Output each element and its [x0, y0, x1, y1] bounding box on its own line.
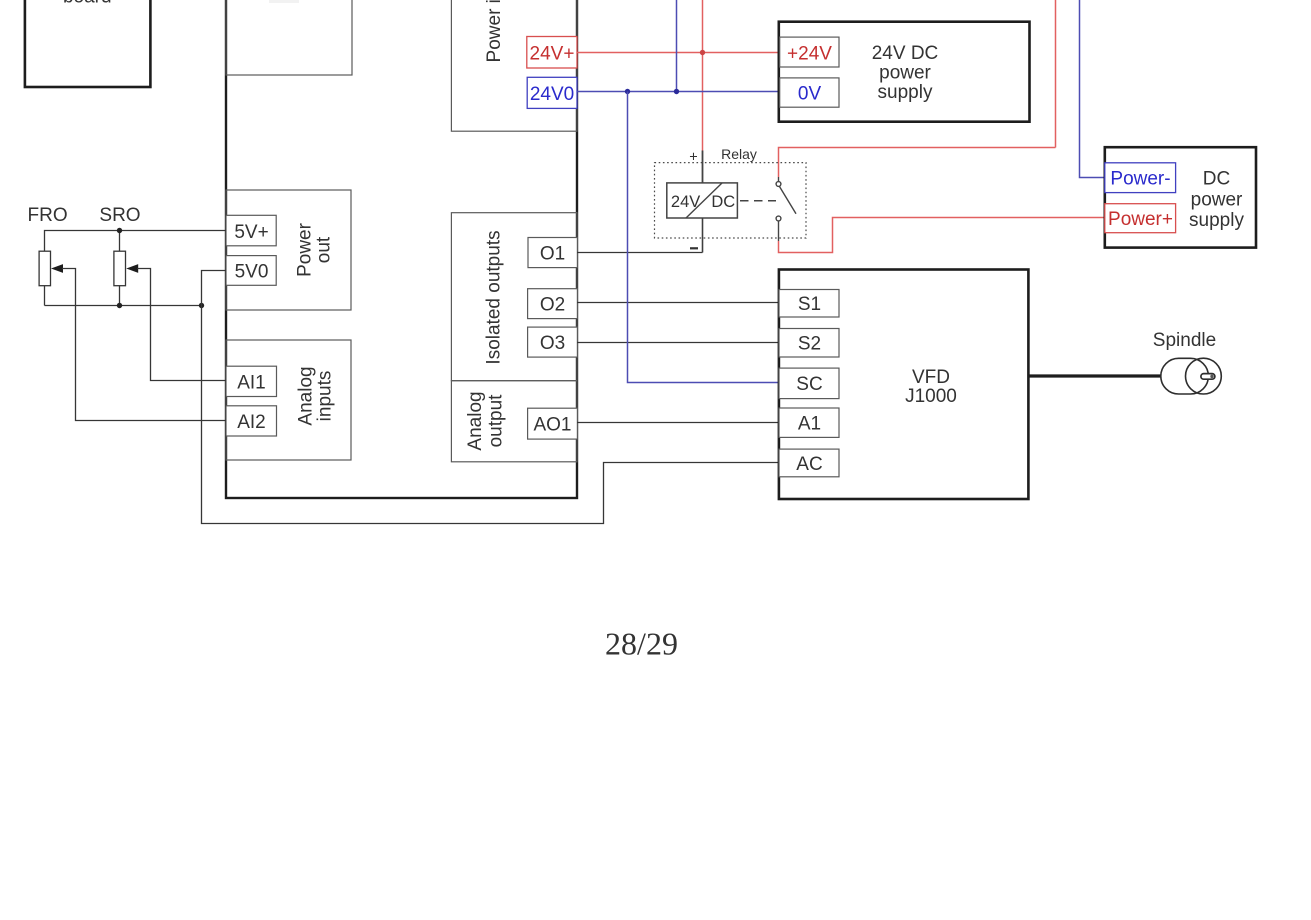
svg-text:Spindle: Spindle: [1153, 330, 1216, 351]
svg-text:J1000: J1000: [905, 386, 957, 407]
svg-text:SC: SC: [796, 374, 822, 395]
svg-text:Power+: Power+: [1108, 209, 1173, 230]
svg-text:+24V: +24V: [787, 43, 832, 64]
svg-text:power: power: [879, 63, 931, 84]
svg-text:A1: A1: [798, 414, 821, 435]
svg-text:0V: 0V: [798, 83, 822, 104]
svg-text:board: board: [63, 0, 112, 8]
svg-text:24V DC: 24V DC: [872, 43, 939, 64]
svg-text:24V: 24V: [671, 193, 700, 211]
svg-text:Analog: Analog: [295, 366, 316, 425]
svg-text:S2: S2: [798, 334, 821, 355]
svg-text:supply: supply: [1189, 210, 1244, 231]
svg-text:+: +: [689, 150, 697, 166]
svg-text:power: power: [1191, 190, 1243, 211]
svg-text:O2: O2: [540, 295, 565, 316]
svg-text:5V0: 5V0: [235, 262, 269, 283]
svg-text:supply: supply: [878, 82, 933, 103]
svg-text:DC: DC: [1203, 169, 1230, 190]
svg-text:S1: S1: [798, 294, 821, 315]
svg-text:Power-: Power-: [1110, 169, 1170, 190]
svg-text:AI2: AI2: [237, 412, 266, 433]
svg-text:AO1: AO1: [533, 415, 571, 436]
svg-text:AC: AC: [796, 454, 822, 475]
svg-text:Power: Power: [294, 222, 315, 277]
svg-text:Isolated outputs: Isolated outputs: [483, 230, 504, 364]
svg-text:AI1: AI1: [237, 372, 266, 393]
svg-text:28/29: 28/29: [605, 626, 678, 662]
svg-text:DC: DC: [711, 193, 735, 211]
svg-text:Power in: Power in: [484, 0, 505, 62]
svg-text:O3: O3: [540, 333, 565, 354]
svg-text:SRO: SRO: [99, 205, 140, 226]
svg-text:5V+: 5V+: [234, 222, 268, 243]
svg-text:Relay: Relay: [721, 146, 757, 162]
svg-text:24V+: 24V+: [530, 44, 575, 65]
svg-text:out: out: [313, 236, 334, 263]
svg-text:inputs: inputs: [314, 371, 335, 422]
svg-text:O1: O1: [540, 243, 565, 264]
svg-text:Analog: Analog: [465, 391, 486, 450]
svg-text:FRO: FRO: [28, 205, 68, 226]
svg-text:24V0: 24V0: [530, 84, 574, 105]
svg-text:VFD: VFD: [912, 367, 950, 388]
svg-text:output: output: [485, 394, 506, 448]
